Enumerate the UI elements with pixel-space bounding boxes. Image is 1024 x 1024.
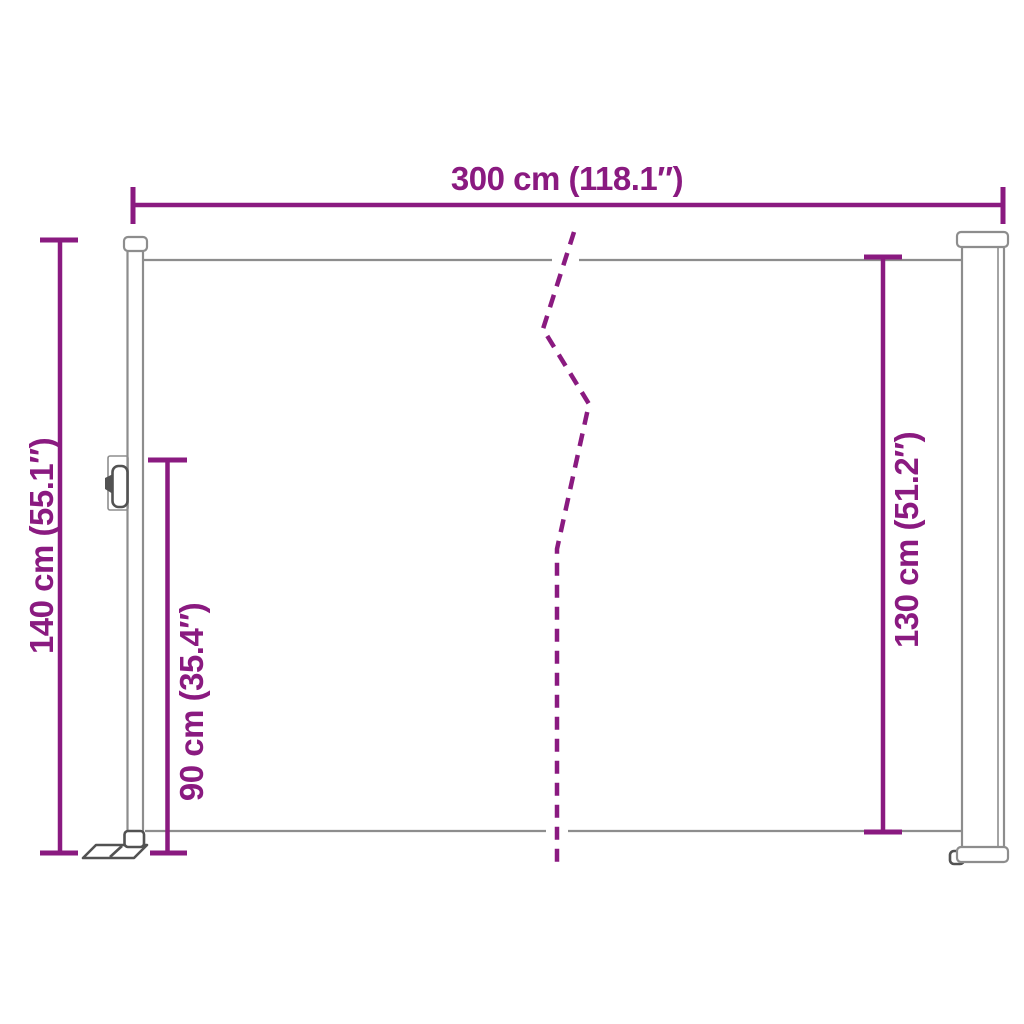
- cassette-housing: [950, 232, 1008, 864]
- height-handle-dimension-label: 90 cm (35.4″): [173, 603, 210, 801]
- dimension-width: 300 cm (118.1″): [133, 160, 1003, 224]
- pole-foot: [125, 831, 145, 847]
- fabric-break-line: [543, 232, 589, 868]
- diagram-canvas: 300 cm (118.1″) 140 cm (55.1″) 90 cm (35…: [0, 0, 1024, 1024]
- cassette-top-cap: [957, 232, 1008, 247]
- dimension-height-fabric: 130 cm (51.2″): [864, 257, 925, 832]
- handle-grip: [113, 466, 128, 507]
- dimension-height-total: 140 cm (55.1″): [23, 240, 78, 853]
- pole-body: [128, 249, 144, 834]
- dimension-height-handle: 90 cm (35.4″): [148, 460, 210, 853]
- awning-dimension-diagram: 300 cm (118.1″) 140 cm (55.1″) 90 cm (35…: [0, 0, 1024, 1024]
- pole-top-cap: [124, 237, 147, 251]
- height-total-dimension-label: 140 cm (55.1″): [23, 438, 60, 654]
- width-dimension-label: 300 cm (118.1″): [451, 160, 683, 197]
- handle-clip: [105, 474, 113, 494]
- left-support-pole: [83, 237, 147, 858]
- height-fabric-dimension-label: 130 cm (51.2″): [888, 432, 925, 648]
- cassette-bottom-cap: [957, 847, 1008, 862]
